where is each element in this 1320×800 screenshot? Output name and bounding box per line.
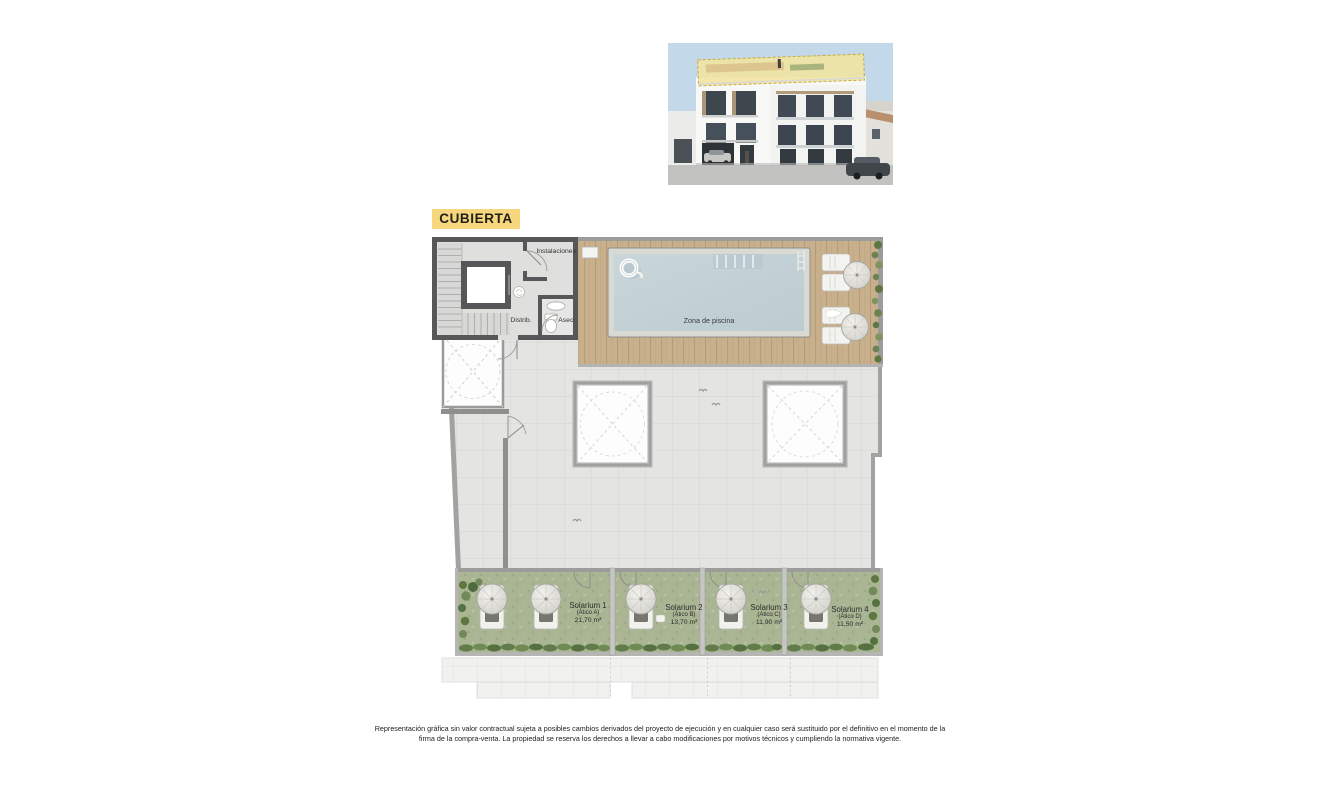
solarium-name: Solarium 1 xyxy=(565,601,611,610)
solarium-name: Solarium 2 xyxy=(661,603,707,612)
solarium-unit: (Ático B) xyxy=(661,612,707,619)
pool-deck xyxy=(578,237,883,367)
disclaimer: Representación gráfica sin valor contrac… xyxy=(0,724,1320,744)
solarium-area: 11,50 m² xyxy=(827,621,873,630)
solarium-unit: (Ático D) xyxy=(827,614,873,621)
solarium-name: Solarium 4 xyxy=(827,605,873,614)
elevator xyxy=(461,261,511,309)
room-label-distribuidor: Distrib. xyxy=(506,317,536,324)
right-wing-windows xyxy=(776,91,854,165)
solarium-2-label: Solarium 2 (Ático B) 13,70 m² xyxy=(661,603,707,628)
parasol-icon xyxy=(844,262,871,289)
disclaimer-line-2: firma de la compra-venta. La propiedad s… xyxy=(0,734,1320,744)
skylight-left xyxy=(443,336,503,407)
stairs-upper-flight xyxy=(438,243,462,335)
deck-equipment-box xyxy=(582,247,598,258)
building-render-image xyxy=(668,43,893,185)
disclaimer-line-1: Representación gráfica sin valor contrac… xyxy=(0,724,1320,734)
solarium-1-label: Solarium 1 (Ático A) 21,70 m² xyxy=(565,601,611,626)
page: CUBIERTA xyxy=(0,0,1320,800)
solarium-unit: (Ático C) xyxy=(746,612,792,619)
sink-icon xyxy=(547,302,565,310)
solarium-name: Solarium 3 xyxy=(746,603,792,612)
parasol-icon xyxy=(626,584,656,614)
parasol-icon xyxy=(531,584,561,614)
parasol-icon xyxy=(842,314,869,341)
skylight-center-right xyxy=(765,383,845,465)
room-label-zona-piscina: Zona de piscina xyxy=(664,317,754,325)
stairs-lower-flight xyxy=(462,313,510,335)
solarium-unit: (Ático A) xyxy=(565,610,611,617)
solarium-area: 13,70 m² xyxy=(661,619,707,628)
solarium-area: 11,90 m² xyxy=(746,619,792,628)
solarium-3-label: Solarium 3 (Ático C) 11,90 m² xyxy=(746,603,792,628)
room-label-aseo: Aseo xyxy=(554,317,578,324)
plant-icon xyxy=(514,287,525,298)
floor-plan-drawing xyxy=(430,235,890,705)
room-label-instalaciones: Instalaciones xyxy=(524,248,576,255)
floor-plan: Instalaciones Distrib. Aseo Zona de pisc… xyxy=(430,235,890,705)
lower-roof-outline xyxy=(442,658,878,698)
floor-label: CUBIERTA xyxy=(432,209,520,229)
building-render xyxy=(668,43,893,185)
solarium-area: 21,70 m² xyxy=(565,617,611,626)
parasol-icon xyxy=(716,584,746,614)
solarium-4-label: Solarium 4 (Ático D) 11,50 m² xyxy=(827,605,873,630)
skylight-center-left xyxy=(575,383,650,465)
neighbor-building-right xyxy=(864,101,893,111)
parasol-icon xyxy=(477,584,507,614)
